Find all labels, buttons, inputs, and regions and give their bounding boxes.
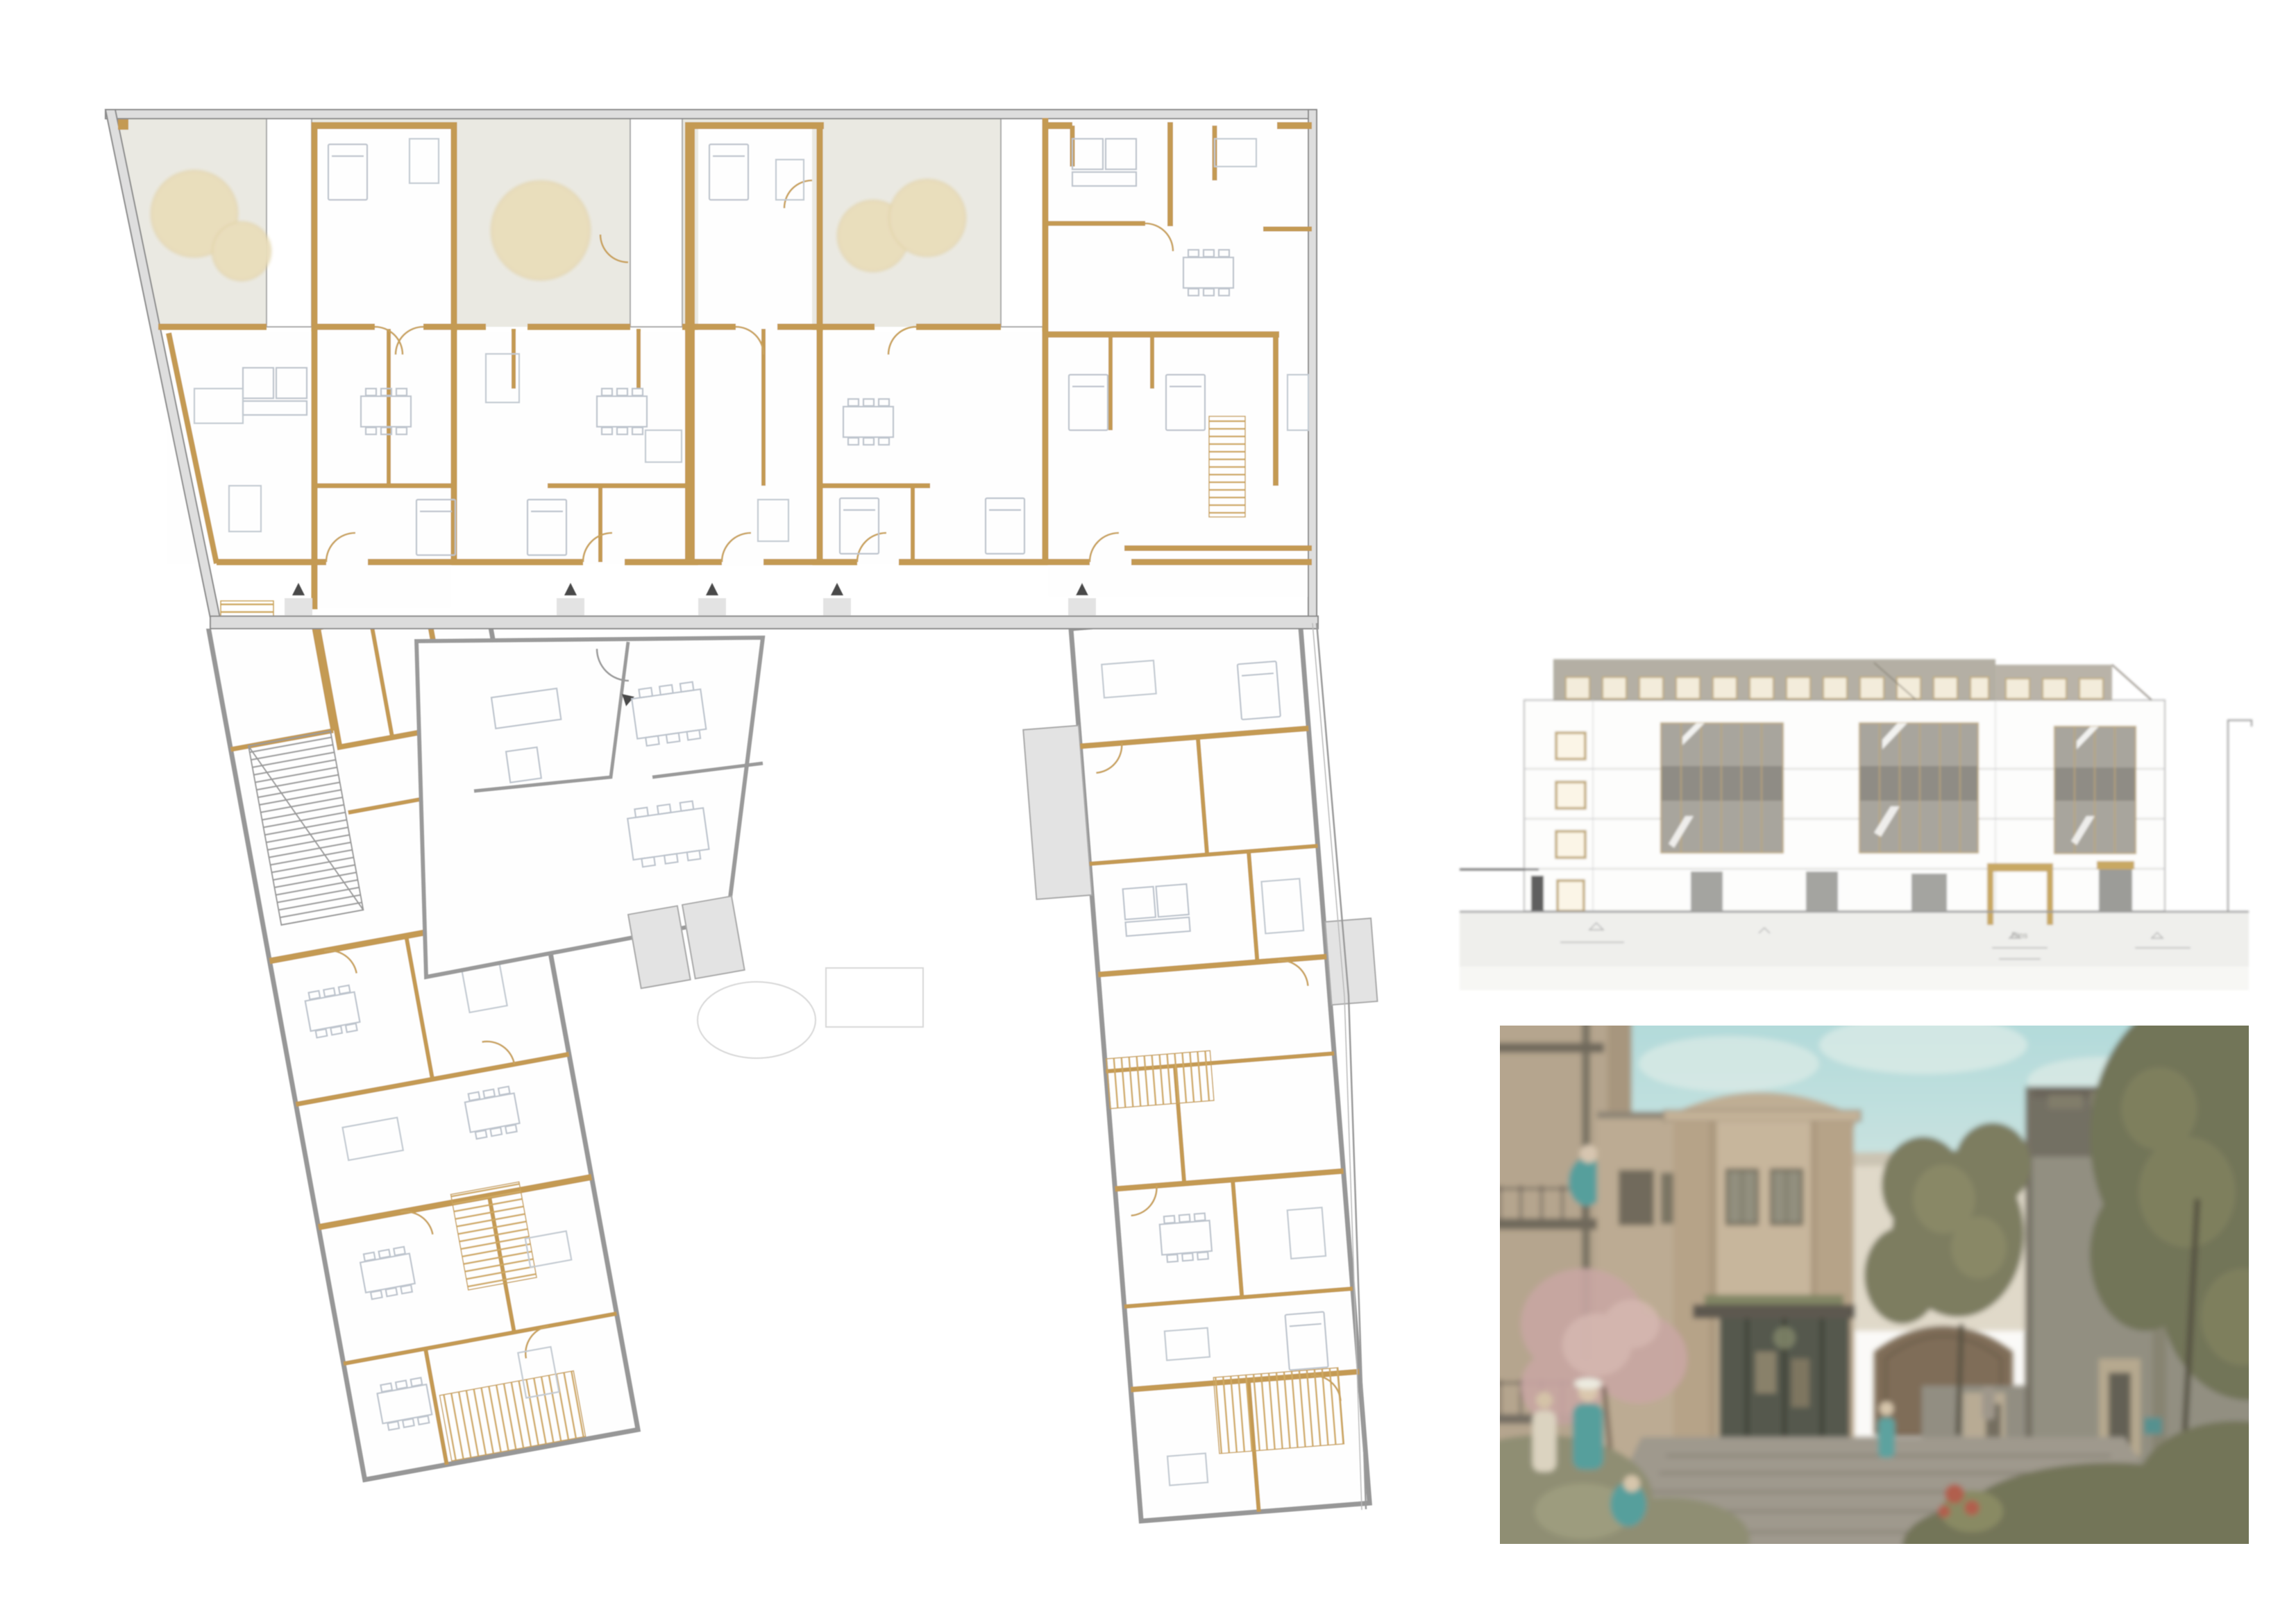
svg-text:Bins: Bins bbox=[2011, 931, 2027, 940]
